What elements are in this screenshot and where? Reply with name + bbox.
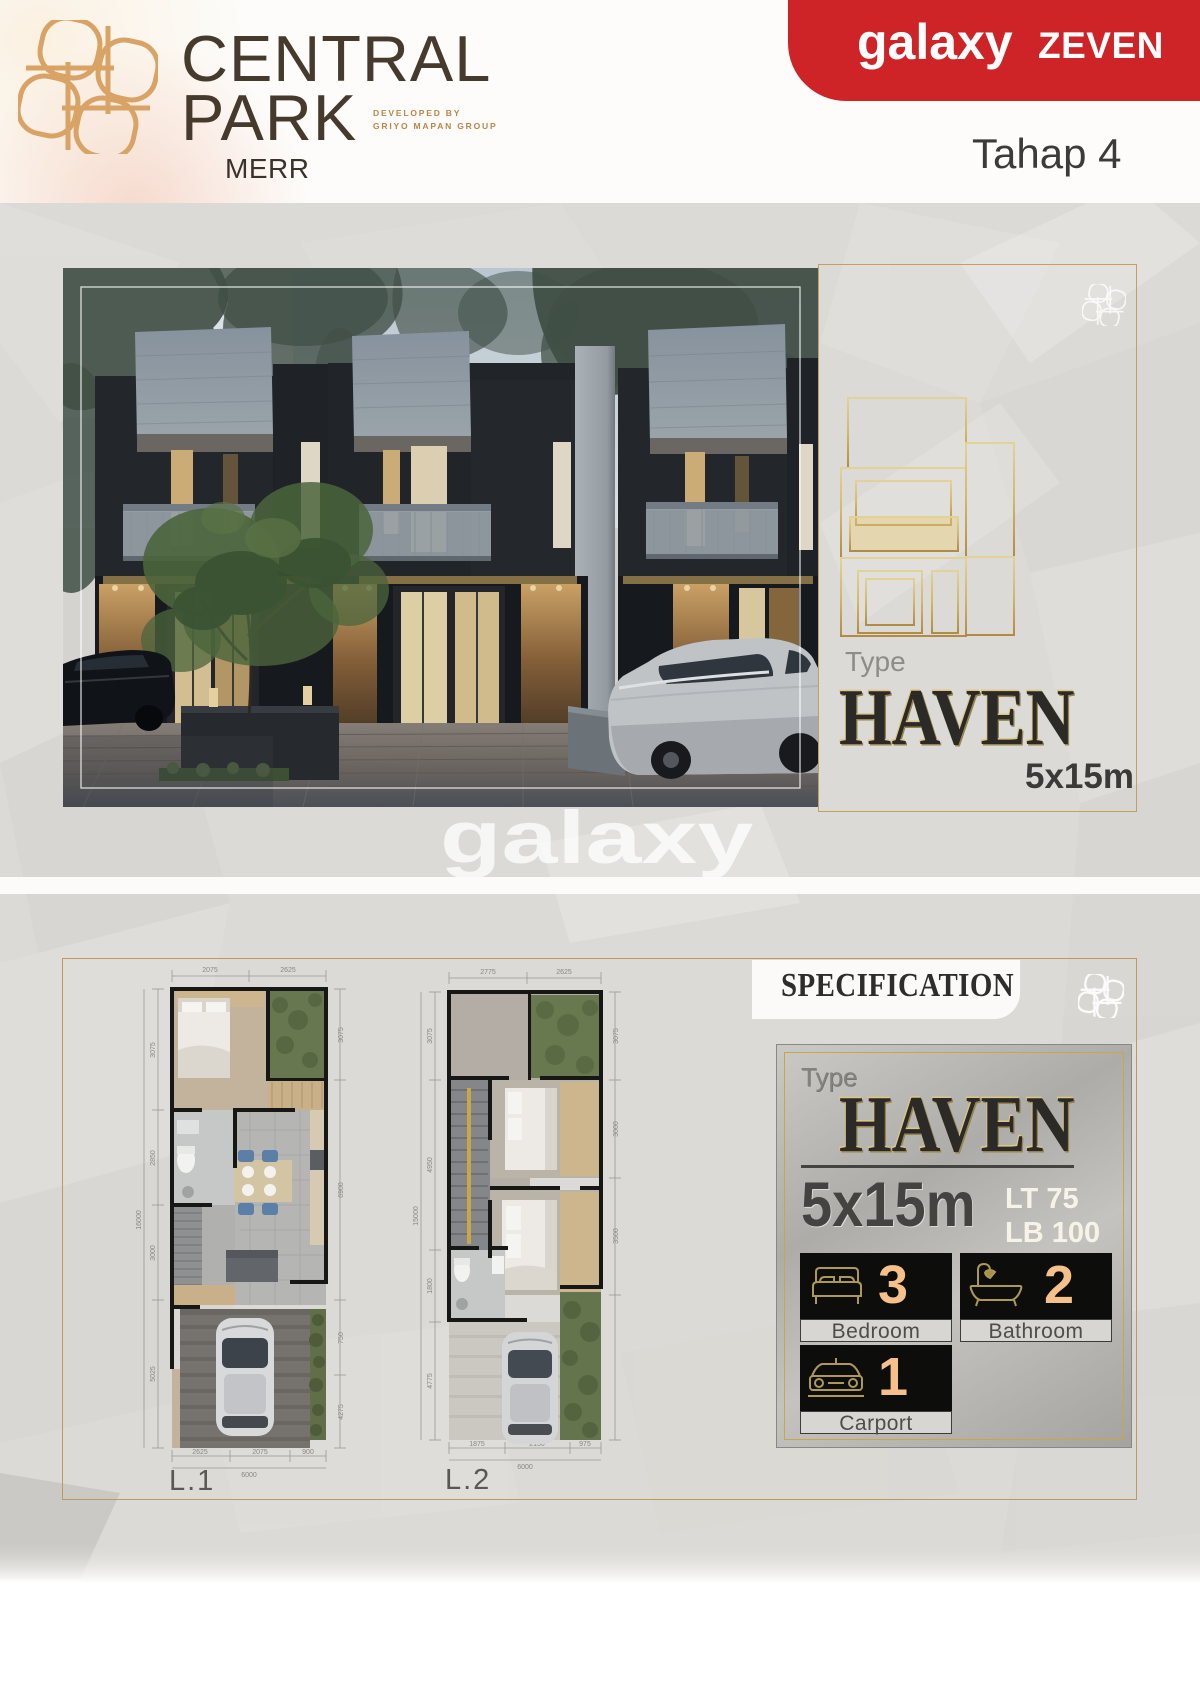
- svg-text:2625: 2625: [280, 967, 296, 974]
- svg-text:4950: 4950: [427, 1157, 434, 1173]
- svg-text:6000: 6000: [517, 1464, 533, 1471]
- svg-text:3075: 3075: [150, 1042, 157, 1058]
- svg-text:750: 750: [338, 1332, 345, 1344]
- svg-text:2625: 2625: [556, 969, 572, 976]
- svg-text:1800: 1800: [427, 1278, 434, 1294]
- svg-text:2775: 2775: [480, 969, 496, 976]
- svg-text:1875: 1875: [469, 1441, 485, 1448]
- svg-text:975: 975: [579, 1441, 591, 1448]
- svg-text:3000: 3000: [150, 1245, 157, 1261]
- svg-text:2075: 2075: [202, 967, 218, 974]
- svg-text:2850: 2850: [150, 1150, 157, 1166]
- svg-text:4275: 4275: [338, 1404, 345, 1420]
- svg-text:3075: 3075: [338, 1027, 345, 1043]
- svg-text:3000: 3000: [613, 1121, 620, 1137]
- svg-text:16000: 16000: [136, 1210, 143, 1230]
- svg-text:6000: 6000: [241, 1472, 257, 1479]
- svg-text:3075: 3075: [427, 1028, 434, 1044]
- svg-text:3500: 3500: [613, 1228, 620, 1244]
- svg-text:3075: 3075: [613, 1028, 620, 1044]
- svg-text:2625: 2625: [192, 1449, 208, 1456]
- svg-text:6900: 6900: [338, 1182, 345, 1198]
- svg-text:4775: 4775: [427, 1373, 434, 1389]
- svg-text:2075: 2075: [252, 1449, 268, 1456]
- svg-text:5025: 5025: [150, 1366, 157, 1382]
- svg-text:900: 900: [302, 1449, 314, 1456]
- svg-text:15000: 15000: [413, 1206, 420, 1226]
